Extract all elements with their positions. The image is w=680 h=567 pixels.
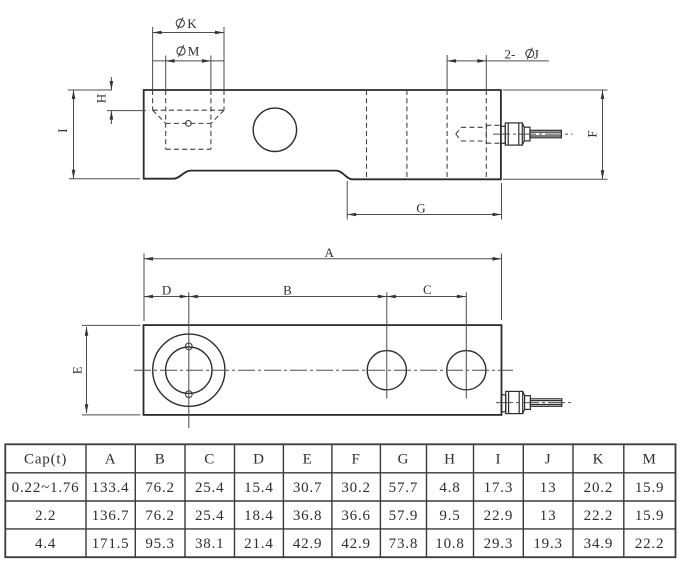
svg-text:36.8: 36.8 (293, 508, 322, 524)
svg-text:C: C (423, 282, 432, 297)
svg-text:76.2: 76.2 (145, 508, 174, 524)
svg-text:F: F (585, 130, 600, 137)
svg-text:22.2: 22.2 (635, 536, 664, 552)
svg-text:M: M (188, 44, 200, 59)
svg-text:17.3: 17.3 (484, 480, 513, 496)
svg-text:20.2: 20.2 (584, 480, 613, 496)
svg-text:E: E (303, 452, 313, 468)
svg-text:76.2: 76.2 (145, 480, 174, 496)
svg-text:10.8: 10.8 (435, 536, 464, 552)
svg-text:136.7: 136.7 (92, 508, 130, 524)
svg-text:4.4: 4.4 (35, 536, 56, 552)
svg-text:M: M (643, 452, 657, 468)
svg-text:9.5: 9.5 (439, 508, 460, 524)
svg-text:K: K (593, 452, 605, 468)
svg-text:H: H (444, 452, 456, 468)
svg-text:22.2: 22.2 (584, 508, 613, 524)
svg-text:171.5: 171.5 (92, 536, 130, 552)
svg-text:K: K (187, 16, 197, 31)
svg-text:J: J (534, 47, 539, 62)
svg-text:C: C (204, 452, 215, 468)
svg-text:2-: 2- (505, 47, 516, 62)
svg-text:133.4: 133.4 (92, 480, 130, 496)
svg-text:42.9: 42.9 (341, 536, 370, 552)
svg-text:34.9: 34.9 (584, 536, 613, 552)
svg-text:30.7: 30.7 (293, 480, 322, 496)
svg-text:18.4: 18.4 (244, 508, 273, 524)
svg-text:15.9: 15.9 (635, 480, 664, 496)
svg-text:42.9: 42.9 (293, 536, 322, 552)
svg-text:29.3: 29.3 (484, 536, 513, 552)
svg-text:G: G (398, 452, 410, 468)
svg-text:2.2: 2.2 (35, 508, 56, 524)
svg-text:57.7: 57.7 (389, 480, 418, 496)
svg-text:30.2: 30.2 (341, 480, 370, 496)
svg-text:95.3: 95.3 (145, 536, 174, 552)
svg-text:A: A (325, 245, 335, 260)
svg-text:A: A (105, 452, 117, 468)
svg-text:13: 13 (540, 508, 557, 524)
svg-text:57.9: 57.9 (389, 508, 418, 524)
svg-text:I: I (496, 452, 502, 468)
svg-text:36.6: 36.6 (341, 508, 370, 524)
svg-text:D: D (162, 283, 171, 298)
svg-text:25.4: 25.4 (195, 480, 224, 496)
svg-text:38.1: 38.1 (195, 536, 224, 552)
svg-text:B: B (283, 283, 292, 298)
svg-text:73.8: 73.8 (389, 536, 418, 552)
svg-text:13: 13 (540, 480, 557, 496)
svg-text:D: D (253, 452, 265, 468)
svg-text:B: B (155, 452, 166, 468)
svg-text:4.8: 4.8 (439, 480, 460, 496)
svg-text:19.3: 19.3 (533, 536, 562, 552)
svg-text:22.9: 22.9 (484, 508, 513, 524)
svg-text:Cap(t): Cap(t) (24, 452, 67, 468)
svg-text:0.22~1.76: 0.22~1.76 (12, 480, 80, 496)
svg-text:21.4: 21.4 (244, 536, 273, 552)
svg-text:F: F (352, 452, 361, 468)
svg-text:E: E (70, 366, 85, 374)
svg-text:15.4: 15.4 (244, 480, 273, 496)
svg-text:H: H (94, 94, 109, 103)
svg-text:15.9: 15.9 (635, 508, 664, 524)
svg-text:J: J (545, 452, 552, 468)
svg-text:I: I (55, 128, 70, 132)
svg-text:25.4: 25.4 (195, 508, 224, 524)
svg-text:G: G (416, 201, 425, 216)
